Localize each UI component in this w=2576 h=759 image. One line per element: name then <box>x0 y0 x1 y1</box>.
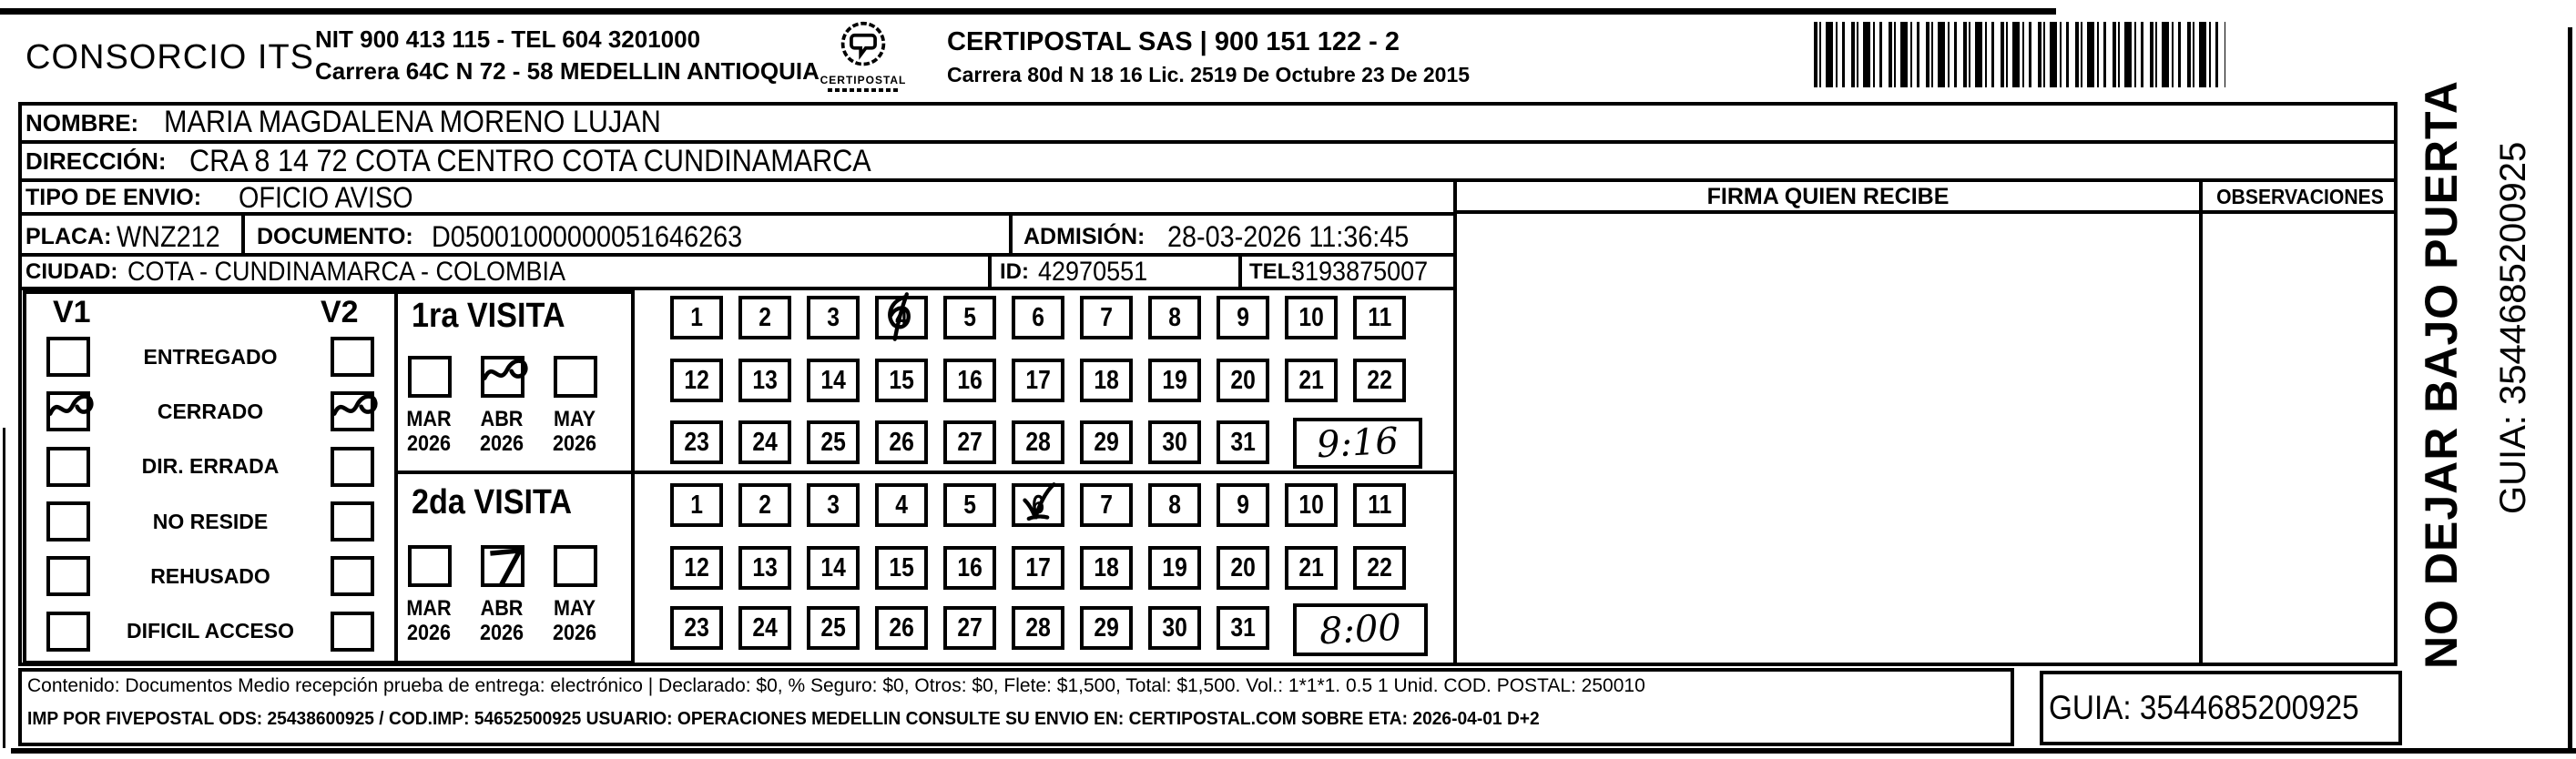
day-25-box-2da-visita: 25 <box>807 606 860 650</box>
day-30-box-2da-visita: 30 <box>1148 606 1201 650</box>
month-label: MAY <box>546 407 604 432</box>
scan-edge-top <box>0 8 2056 15</box>
month-checkbox-1ra-visita-abr <box>481 356 524 398</box>
day-14-box-1ra-visita: 14 <box>807 359 860 402</box>
tel-value: 3193875007 <box>1291 257 1443 288</box>
certipostal-address: Carrera 80d N 18 16 Lic. 2519 De Octubre… <box>947 63 1470 87</box>
day-24-box-2da-visita: 24 <box>738 606 791 650</box>
day-29-box-1ra-visita: 29 <box>1080 420 1133 464</box>
day-19-box-2da-visita: 19 <box>1148 546 1201 590</box>
day-9-box-1ra-visita: 9 <box>1217 296 1269 339</box>
footer-content-line: Contenido: Documentos Medio recepción pr… <box>27 675 1645 697</box>
admision-label: ADMISIÓN: <box>1023 224 1145 250</box>
day-1-box-1ra-visita: 1 <box>670 296 723 339</box>
day-27-box-1ra-visita: 27 <box>943 420 996 464</box>
day-8-box-2da-visita: 8 <box>1148 483 1201 527</box>
v1-column-header: V1 <box>53 295 91 330</box>
month-label: ABR <box>473 407 531 432</box>
certipostal-seal-icon <box>837 20 890 71</box>
month-year-label: 2026 <box>401 431 458 457</box>
day-12-box-2da-visita: 12 <box>670 546 723 590</box>
day-10-box-1ra-visita: 10 <box>1285 296 1338 339</box>
v2-column-header: V2 <box>321 295 359 330</box>
scan-edge-bottom <box>11 748 2576 754</box>
day-28-box-2da-visita: 28 <box>1012 606 1064 650</box>
handwritten-time-1ra-visita: 9:16 <box>1316 420 1400 467</box>
company-nit-tel: NIT 900 413 115 - TEL 604 3201000 <box>315 24 820 56</box>
visit-title-2da-visita: 2da VISITA <box>412 483 590 522</box>
observaciones-divider <box>2199 178 2203 666</box>
company-name: CONSORCIO ITS <box>25 38 314 77</box>
day-4-box-1ra-visita: 4 <box>875 296 928 339</box>
documento-label: DOCUMENTO: <box>257 224 413 250</box>
checkbox-v2-cerrado <box>331 391 374 431</box>
time-box-2da-visita: 8:00 <box>1293 603 1428 656</box>
day-5-box-2da-visita: 5 <box>943 483 996 527</box>
visit-title-1ra-visita: 1ra VISITA <box>412 297 582 336</box>
side-rotated-text: NO DEJAR BAJO PUERTA GUIA: 3544685200925 <box>2406 103 2557 669</box>
day-8-box-1ra-visita: 8 <box>1148 296 1201 339</box>
company-address: Carrera 64C N 72 - 58 MEDELLIN ANTIOQUIA <box>315 56 820 87</box>
logo-caption: CERTIPOSTAL <box>809 74 918 86</box>
status-row-no-reside: NO RESIDE <box>25 501 396 541</box>
cell-divider <box>241 216 245 253</box>
status-option-label: CERRADO <box>90 400 331 424</box>
barcode <box>1814 22 2225 87</box>
month-checkbox-1ra-visita-may <box>554 356 597 398</box>
day-20-box-1ra-visita: 20 <box>1217 359 1269 402</box>
month-year-label: 2026 <box>546 621 604 646</box>
status-option-label: DIR. ERRADA <box>90 454 331 479</box>
day-3-box-1ra-visita: 3 <box>807 296 860 339</box>
no-dejar-bajo-puerta-warning: NO DEJAR BAJO PUERTA <box>2406 103 2477 669</box>
guia-number: GUIA: 3544685200925 <box>2049 689 2359 727</box>
day-17-box-2da-visita: 17 <box>1012 546 1064 590</box>
day-22-box-1ra-visita: 22 <box>1353 359 1406 402</box>
status-row-dificil-acceso: DIFICIL ACCESO <box>25 612 396 652</box>
month-year-label: 2026 <box>546 431 604 457</box>
day-7-box-2da-visita: 7 <box>1080 483 1133 527</box>
day-2-box-2da-visita: 2 <box>738 483 791 527</box>
status-option-label: REHUSADO <box>90 564 331 589</box>
id-value: 42970551 <box>1038 257 1159 288</box>
status-row-cerrado: CERRADO <box>25 391 396 431</box>
firma-quien-recibe-header: FIRMA QUIEN RECIBE <box>1457 182 2199 211</box>
nombre-label: NOMBRE: <box>25 109 138 137</box>
day-28-box-1ra-visita: 28 <box>1012 420 1064 464</box>
checkbox-v1-no-reside <box>46 501 90 541</box>
day-10-box-2da-visita: 10 <box>1285 483 1338 527</box>
row-divider <box>18 212 1457 216</box>
visit-divider <box>394 471 1455 474</box>
status-row-dir-errada: DIR. ERRADA <box>25 447 396 487</box>
month-checkbox-2da-visita-may <box>554 545 597 587</box>
day-1-box-2da-visita: 1 <box>670 483 723 527</box>
checkbox-v2-no-reside <box>331 501 374 541</box>
day-27-box-2da-visita: 27 <box>943 606 996 650</box>
ciudad-label: CIUDAD: <box>25 259 117 285</box>
nombre-value: MARIA MAGDALENA MORENO LUJAN <box>164 105 716 140</box>
day-3-box-2da-visita: 3 <box>807 483 860 527</box>
month-year-label: 2026 <box>473 621 531 646</box>
day-17-box-1ra-visita: 17 <box>1012 359 1064 402</box>
day-31-box-2da-visita: 31 <box>1217 606 1269 650</box>
day-21-box-2da-visita: 21 <box>1285 546 1338 590</box>
checkbox-v2-dificil-acceso <box>331 612 374 652</box>
day-16-box-1ra-visita: 16 <box>943 359 996 402</box>
month-checkbox-2da-visita-abr <box>481 545 524 587</box>
status-row-entregado: ENTREGADO <box>25 337 396 377</box>
column-divider <box>1453 178 1457 666</box>
direccion-label: DIRECCIÓN: <box>25 147 167 176</box>
checkbox-v1-dificil-acceso <box>46 612 90 652</box>
month-year-label: 2026 <box>401 621 458 646</box>
admision-value: 28-03-2026 11:36:45 <box>1167 220 1436 254</box>
day-25-box-1ra-visita: 25 <box>807 420 860 464</box>
observaciones-area <box>2206 218 2394 663</box>
day-5-box-1ra-visita: 5 <box>943 296 996 339</box>
status-options: ENTREGADOCERRADODIR. ERRADANO RESIDEREHU… <box>25 329 396 659</box>
day-21-box-1ra-visita: 21 <box>1285 359 1338 402</box>
status-option-label: DIFICIL ACCESO <box>90 619 331 643</box>
day-7-box-1ra-visita: 7 <box>1080 296 1133 339</box>
day-19-box-1ra-visita: 19 <box>1148 359 1201 402</box>
scan-edge-left <box>3 428 5 748</box>
checkbox-v1-rehusado <box>46 556 90 596</box>
month-label: MAY <box>546 596 604 622</box>
certipostal-logo: CERTIPOSTAL <box>809 20 918 92</box>
placa-label: PLACA: <box>25 224 111 250</box>
day-11-box-1ra-visita: 11 <box>1353 296 1406 339</box>
month-year-label: 2026 <box>473 431 531 457</box>
certipostal-info: CERTIPOSTAL SAS | 900 151 122 - 2 Carrer… <box>947 27 1470 87</box>
day-22-box-2da-visita: 22 <box>1353 546 1406 590</box>
direccion-value: CRA 8 14 72 COTA CENTRO COTA CUNDINAMARC… <box>189 144 947 179</box>
day-18-box-1ra-visita: 18 <box>1080 359 1133 402</box>
documento-value: D05001000000051646263 <box>432 220 777 254</box>
day-15-box-1ra-visita: 15 <box>875 359 928 402</box>
day-26-box-2da-visita: 26 <box>875 606 928 650</box>
firma-quien-recibe-area <box>1466 218 2194 663</box>
day-20-box-2da-visita: 20 <box>1217 546 1269 590</box>
time-box-1ra-visita: 9:16 <box>1293 418 1422 469</box>
day-23-box-2da-visita: 23 <box>670 606 723 650</box>
scan-edge-right <box>2568 27 2572 754</box>
day-6-box-2da-visita: 6 <box>1012 483 1064 527</box>
day-14-box-2da-visita: 14 <box>807 546 860 590</box>
day-24-box-1ra-visita: 24 <box>738 420 791 464</box>
day-18-box-2da-visita: 18 <box>1080 546 1133 590</box>
scanned-delivery-form: CONSORCIO ITS NIT 900 413 115 - TEL 604 … <box>0 0 2576 759</box>
cell-divider <box>1238 257 1242 287</box>
observaciones-header: OBSERVACIONES <box>2211 182 2390 211</box>
checkbox-v2-dir-errada <box>331 447 374 487</box>
month-label: ABR <box>473 596 531 622</box>
checkbox-v1-entregado <box>46 337 90 377</box>
day-9-box-2da-visita: 9 <box>1217 483 1269 527</box>
cell-divider <box>988 257 992 287</box>
month-label: MAR <box>401 407 458 432</box>
cell-divider <box>1009 216 1013 253</box>
day-12-box-1ra-visita: 12 <box>670 359 723 402</box>
day-13-box-2da-visita: 13 <box>738 546 791 590</box>
placa-value: WNZ212 <box>117 220 231 254</box>
day-11-box-2da-visita: 11 <box>1353 483 1406 527</box>
day-6-box-1ra-visita: 6 <box>1012 296 1064 339</box>
ciudad-value: COTA - CUNDINAMARCA - COLOMBIA <box>127 257 615 288</box>
company-info: NIT 900 413 115 - TEL 604 3201000 Carrer… <box>315 24 820 87</box>
side-guia-number: GUIA: 3544685200925 <box>2477 103 2550 669</box>
day-15-box-2da-visita: 15 <box>875 546 928 590</box>
status-option-label: NO RESIDE <box>90 510 331 534</box>
status-option-label: ENTREGADO <box>90 345 331 369</box>
day-13-box-1ra-visita: 13 <box>738 359 791 402</box>
day-4-box-2da-visita: 4 <box>875 483 928 527</box>
checkbox-v1-cerrado <box>46 391 90 431</box>
day-16-box-2da-visita: 16 <box>943 546 996 590</box>
day-26-box-1ra-visita: 26 <box>875 420 928 464</box>
footer-imp-line: IMP POR FIVEPOSTAL ODS: 25438600925 / CO… <box>27 709 1540 730</box>
month-label: MAR <box>401 596 458 622</box>
checkbox-v1-dir-errada <box>46 447 90 487</box>
day-30-box-1ra-visita: 30 <box>1148 420 1201 464</box>
logo-tagline <box>828 88 899 92</box>
day-2-box-1ra-visita: 2 <box>738 296 791 339</box>
day-23-box-1ra-visita: 23 <box>670 420 723 464</box>
checkbox-v2-entregado <box>331 337 374 377</box>
tipo-envio-label: TIPO DE ENVIO: <box>25 185 201 211</box>
month-checkbox-1ra-visita-mar <box>408 356 452 398</box>
id-label: ID: <box>1000 259 1029 285</box>
checkbox-v2-rehusado <box>331 556 374 596</box>
handwritten-time-2da-visita: 8:00 <box>1319 607 1402 653</box>
day-29-box-2da-visita: 29 <box>1080 606 1133 650</box>
day-31-box-1ra-visita: 31 <box>1217 420 1269 464</box>
certipostal-title: CERTIPOSTAL SAS | 900 151 122 - 2 <box>947 27 1470 57</box>
status-row-rehusado: REHUSADO <box>25 556 396 596</box>
tipo-envio-value: OFICIO AVISO <box>239 181 433 215</box>
guia-box: GUIA: 3544685200925 <box>2040 671 2402 745</box>
month-checkbox-2da-visita-mar <box>408 545 452 587</box>
